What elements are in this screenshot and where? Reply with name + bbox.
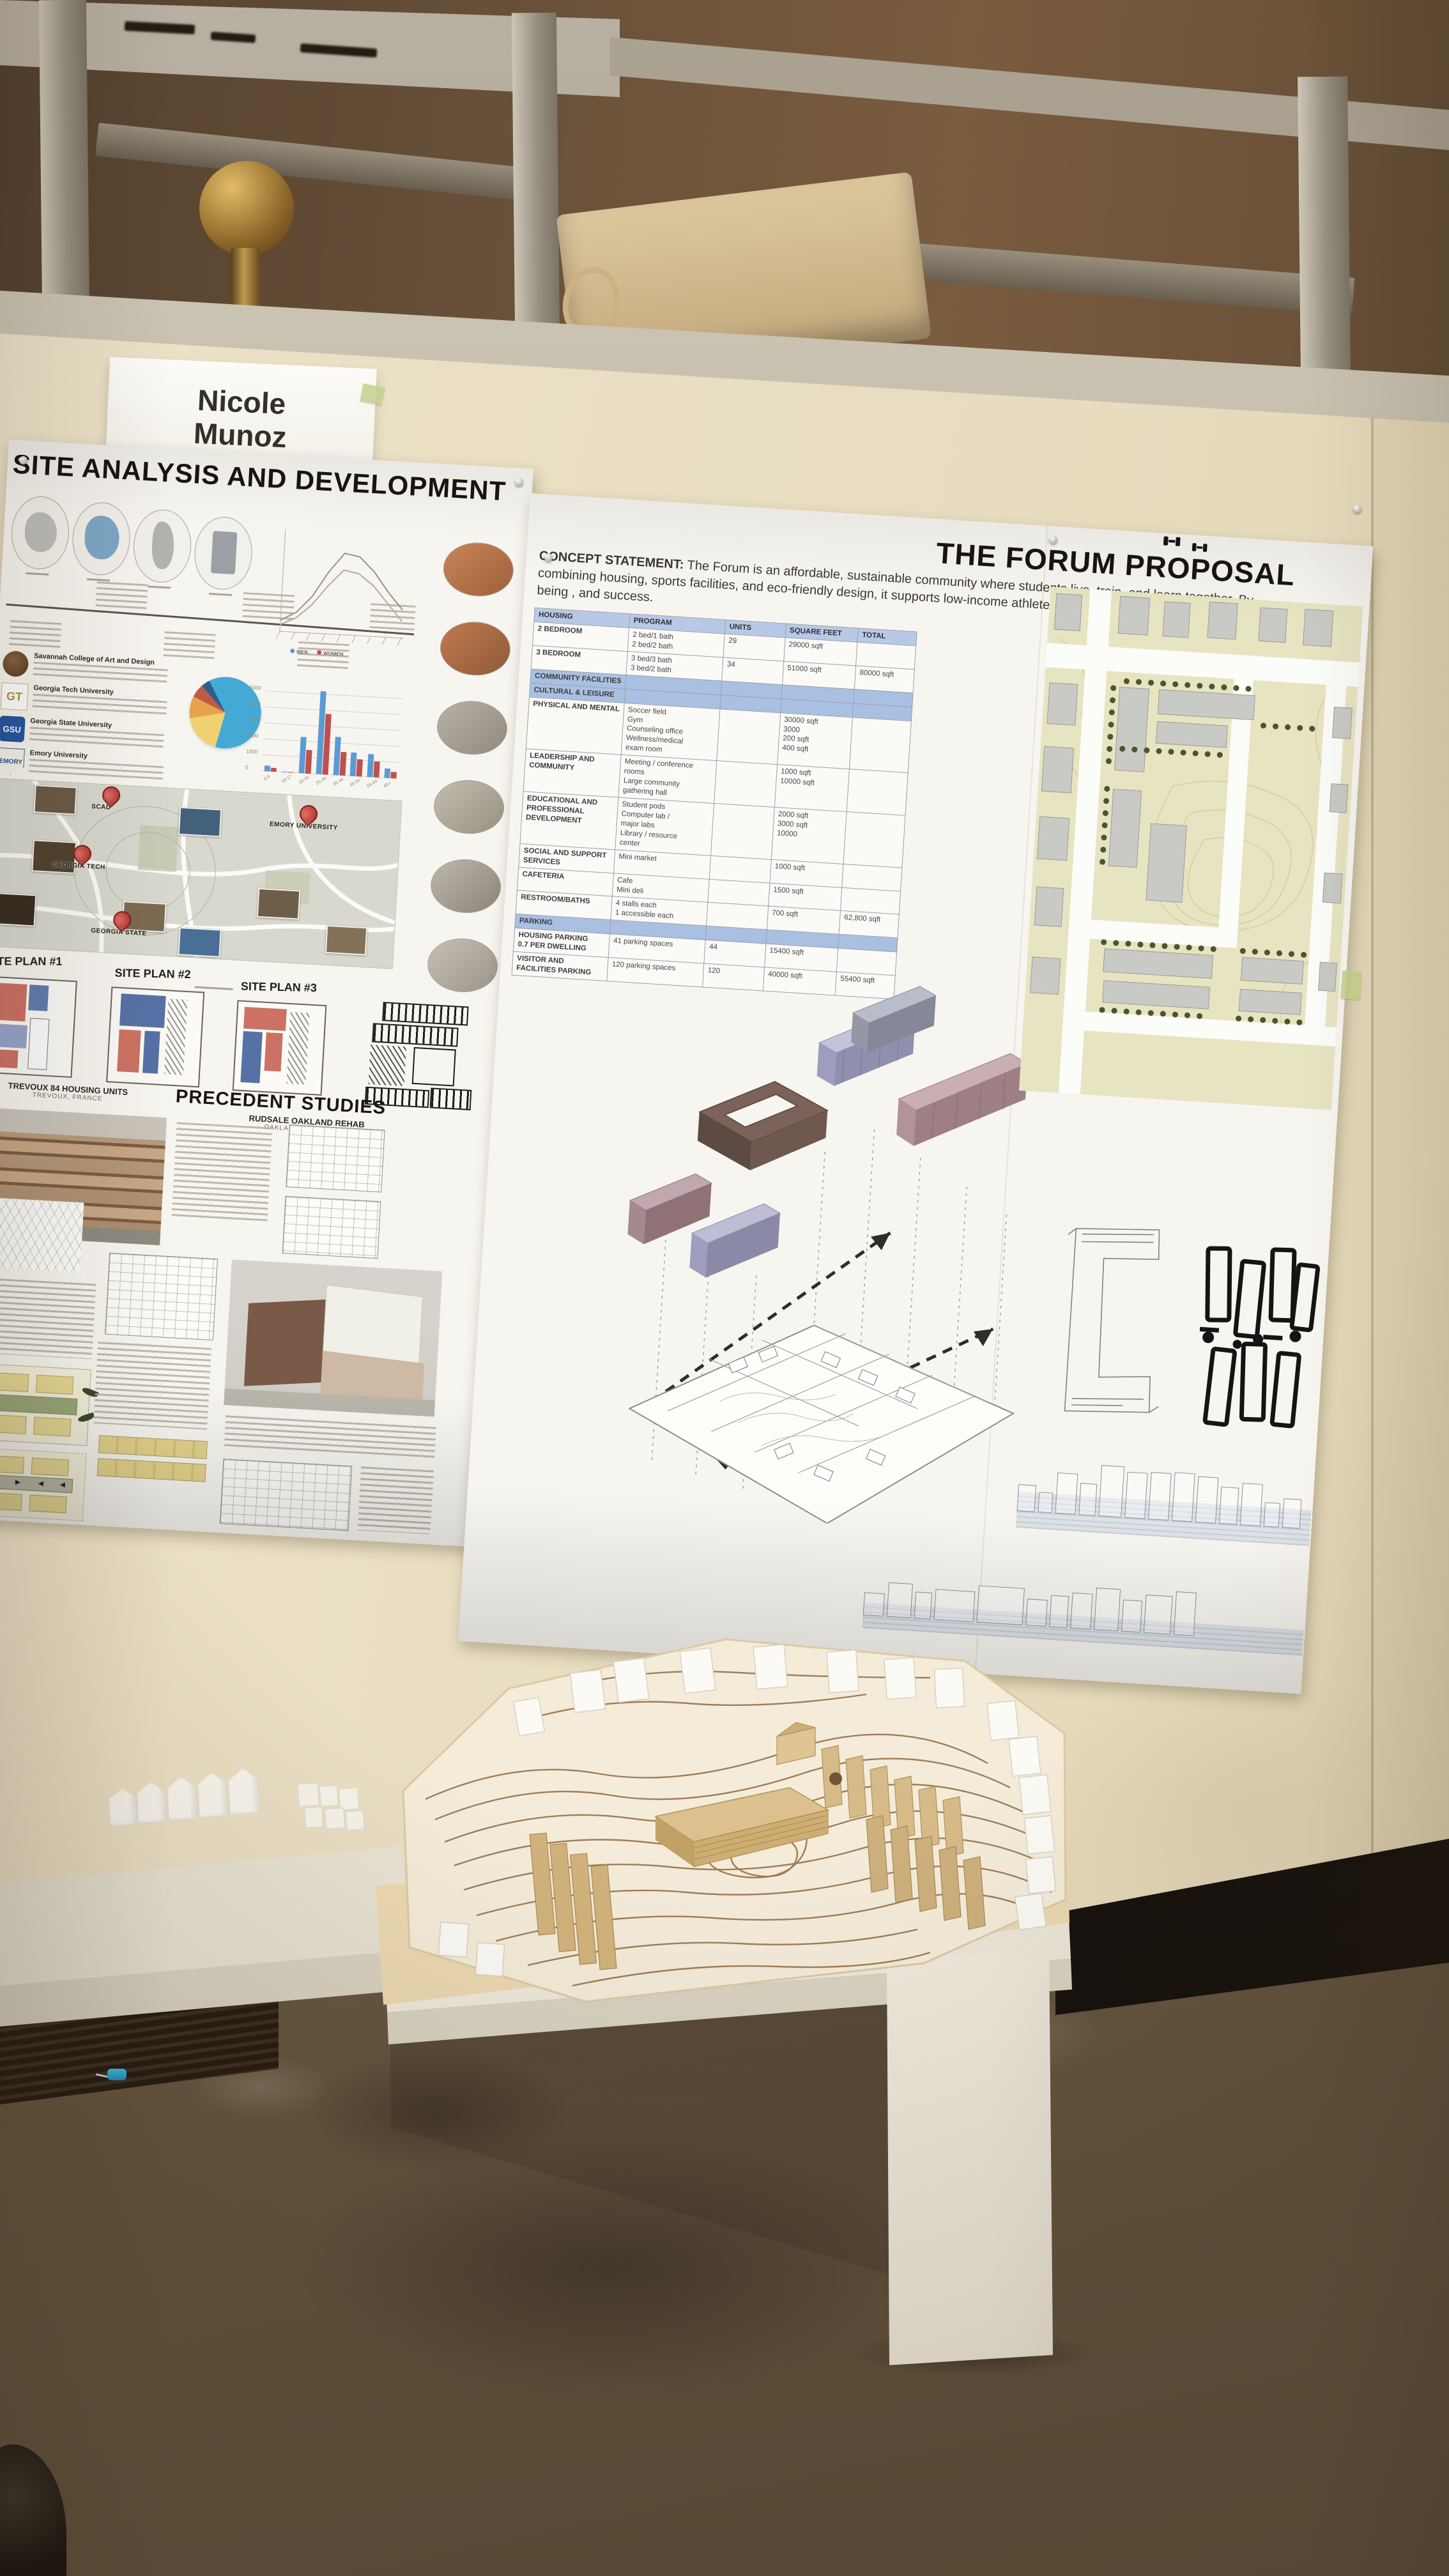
floor-plan-drawing xyxy=(282,1196,381,1259)
bar xyxy=(287,772,293,773)
aerial-oval xyxy=(426,937,500,994)
pushpin-icon xyxy=(515,478,523,486)
unit-plans-grid xyxy=(105,1253,218,1340)
table-cell xyxy=(847,769,908,815)
bar-group: 45-54 xyxy=(350,680,368,777)
pin-label: SCAD xyxy=(91,803,111,811)
bar-group: 0-9 xyxy=(264,675,282,772)
rudsale-render xyxy=(224,1259,442,1416)
atlanta-map: SCAD GEORGIA TECH GEORGIA STATE EMORY UN… xyxy=(0,778,402,969)
study-models-cubes xyxy=(297,1779,377,1835)
student-name: Nicole Munoz xyxy=(193,384,289,454)
table-cell: 30000 sqft 3000 200 sqft 400 sqft xyxy=(777,712,852,769)
yellow-elevation xyxy=(97,1458,206,1482)
table-cell xyxy=(842,864,902,891)
pushpin-icon xyxy=(544,553,553,562)
table-cell: Meeting / conference rooms Large communi… xyxy=(618,755,717,803)
table-cell xyxy=(850,717,912,772)
site-section-1 xyxy=(1016,1432,1315,1546)
bar-group: 10-17 xyxy=(281,677,299,773)
parti-sketch xyxy=(1193,1240,1321,1439)
site-diagram-green xyxy=(0,1363,91,1446)
bar xyxy=(271,767,277,772)
tape xyxy=(360,383,385,405)
x-tick: 25-34 xyxy=(315,776,327,786)
table-cell: 62,800 sqft xyxy=(839,911,899,939)
map-photo xyxy=(33,785,77,815)
y-tick: 3000 xyxy=(248,717,259,723)
table-cell xyxy=(711,804,774,859)
map-photo xyxy=(178,927,221,958)
bar xyxy=(264,765,270,771)
map-photo xyxy=(325,925,367,956)
map-photo xyxy=(178,807,222,838)
bar xyxy=(305,749,312,774)
bar xyxy=(384,769,390,778)
table-cell xyxy=(841,887,901,915)
y-tick: 1000 xyxy=(246,748,257,755)
tape xyxy=(1341,970,1362,1000)
bar xyxy=(339,751,346,776)
georgia-tech-logo-icon: GT xyxy=(0,682,28,710)
sketch-label: SITE PLAN #2 xyxy=(114,967,190,981)
pushpin-icon xyxy=(1353,505,1361,513)
table-cell: 80000 sqft xyxy=(854,666,914,693)
site-diagram-arrows xyxy=(0,1447,87,1521)
x-tick: 18-24 xyxy=(298,775,310,785)
table-cell: Student pods Computer lab / major labs L… xyxy=(615,797,714,855)
ink-massing-sketch xyxy=(356,1000,483,1109)
bar xyxy=(374,762,380,778)
map-photo xyxy=(257,888,300,920)
y-tick: 2000 xyxy=(247,733,258,739)
y-tick: 0 xyxy=(245,764,249,770)
x-tick: 45-54 xyxy=(349,778,362,788)
floor-plan-drawing xyxy=(286,1124,385,1192)
exploded-axon-diagram xyxy=(597,947,1047,1535)
study-models-houses xyxy=(107,1765,270,1830)
wall-corner-line xyxy=(1371,390,1374,1910)
table-cell: 29 xyxy=(723,634,785,661)
plan-drawing xyxy=(220,1459,352,1531)
site-plan-sketch-3 xyxy=(233,1000,327,1096)
x-tick: 65+ xyxy=(383,781,392,788)
aerial-oval xyxy=(433,778,506,836)
bar-group: 35-44 xyxy=(333,679,351,776)
table-cell xyxy=(856,642,916,670)
emory-logo-icon: EMORY xyxy=(0,747,25,776)
tower-floor-plan xyxy=(1052,1215,1186,1427)
window-girt xyxy=(95,123,537,202)
legend-item: MEN xyxy=(290,648,308,655)
site-block-icon xyxy=(192,516,254,592)
atlanta-region-map-icon xyxy=(70,501,132,577)
table-cell xyxy=(714,761,778,808)
poster-forum-proposal: THE FORUM PROPOSAL CONCEPT STATEMENT: Th… xyxy=(458,493,1373,1694)
y-tick: 4000 xyxy=(249,701,260,707)
blue-pushpin xyxy=(107,2069,126,2080)
x-tick: 10-17 xyxy=(280,774,293,784)
aerial-oval xyxy=(442,540,516,598)
table-cell xyxy=(708,879,770,907)
map-photo xyxy=(0,893,36,927)
x-tick: 35-44 xyxy=(332,777,344,786)
studio-wall-photo: Nicole Munoz SITE ANALYSIS AND DEVELOPME… xyxy=(0,0,1449,2576)
bar-group: 25-34 xyxy=(316,678,333,775)
pushpin-icon xyxy=(1049,535,1057,544)
program-table: HOUSINGPROGRAMUNITSSQUARE FEETTOTAL2 BED… xyxy=(512,608,917,1000)
table-cell: Soccer field Gym Counseling office Welln… xyxy=(621,703,720,761)
bar xyxy=(281,771,287,772)
georgia-state-map-icon xyxy=(10,495,71,571)
master-site-plan xyxy=(1019,586,1363,1110)
bar xyxy=(390,772,397,778)
aerial-oval xyxy=(436,699,509,756)
yellow-elevation xyxy=(98,1435,208,1459)
x-tick: 55-64 xyxy=(367,779,379,788)
aerial-oval xyxy=(429,857,503,915)
sketch-label: SITE PLAN #3 xyxy=(241,980,317,995)
dumbbell-icon xyxy=(1188,541,1211,554)
dumbbell-icon xyxy=(1160,534,1184,548)
table-cell: LEADERSHIP AND COMMUNITY xyxy=(523,749,621,797)
table-cell xyxy=(709,855,771,883)
georgia-state-logo-icon: GSU xyxy=(0,716,26,742)
table-cell xyxy=(843,812,905,868)
bell-lamp xyxy=(199,161,294,256)
topographic-site-model xyxy=(381,1628,1074,2011)
table-cell: PHYSICAL AND MENTAL xyxy=(526,697,624,755)
aerial-oval xyxy=(439,620,512,677)
bar-group: 18-24 xyxy=(298,677,316,774)
pushpin-icon xyxy=(19,456,27,464)
site-plan-sketch-1 xyxy=(0,976,77,1078)
table-cell: 34 xyxy=(722,657,784,685)
bar-group: 55-64 xyxy=(367,681,385,778)
bar xyxy=(356,759,364,777)
x-tick: 0-9 xyxy=(263,774,271,781)
table-cell: 1000 sqft 10000 sqft xyxy=(774,765,850,812)
city-district-map-icon xyxy=(132,508,193,584)
poster-site-analysis: SITE ANALYSIS AND DEVELOPMENT xyxy=(0,440,533,1547)
sketch-label: SITE PLAN #1 xyxy=(0,954,62,968)
table-cell: EDUCATIONAL AND PROFESSIONAL DEVELOPMENT xyxy=(520,792,618,850)
scad-logo-icon xyxy=(2,650,29,677)
bar-group: 65+ xyxy=(384,682,402,779)
bar-chart: 010002000300040005000MENWOMEN0-910-1718-… xyxy=(244,657,404,793)
y-tick: 5000 xyxy=(250,685,261,691)
table-cell xyxy=(707,903,769,930)
site-plan-sketch-2 xyxy=(106,986,204,1087)
line-chart xyxy=(269,526,411,648)
axon-line-drawing xyxy=(0,1197,84,1273)
table-cell xyxy=(717,709,780,764)
university-list: Savannah College of Art and Design GT Ge… xyxy=(0,650,182,784)
table-cell: 2000 sqft 3000 sqft 10000 xyxy=(771,807,847,864)
